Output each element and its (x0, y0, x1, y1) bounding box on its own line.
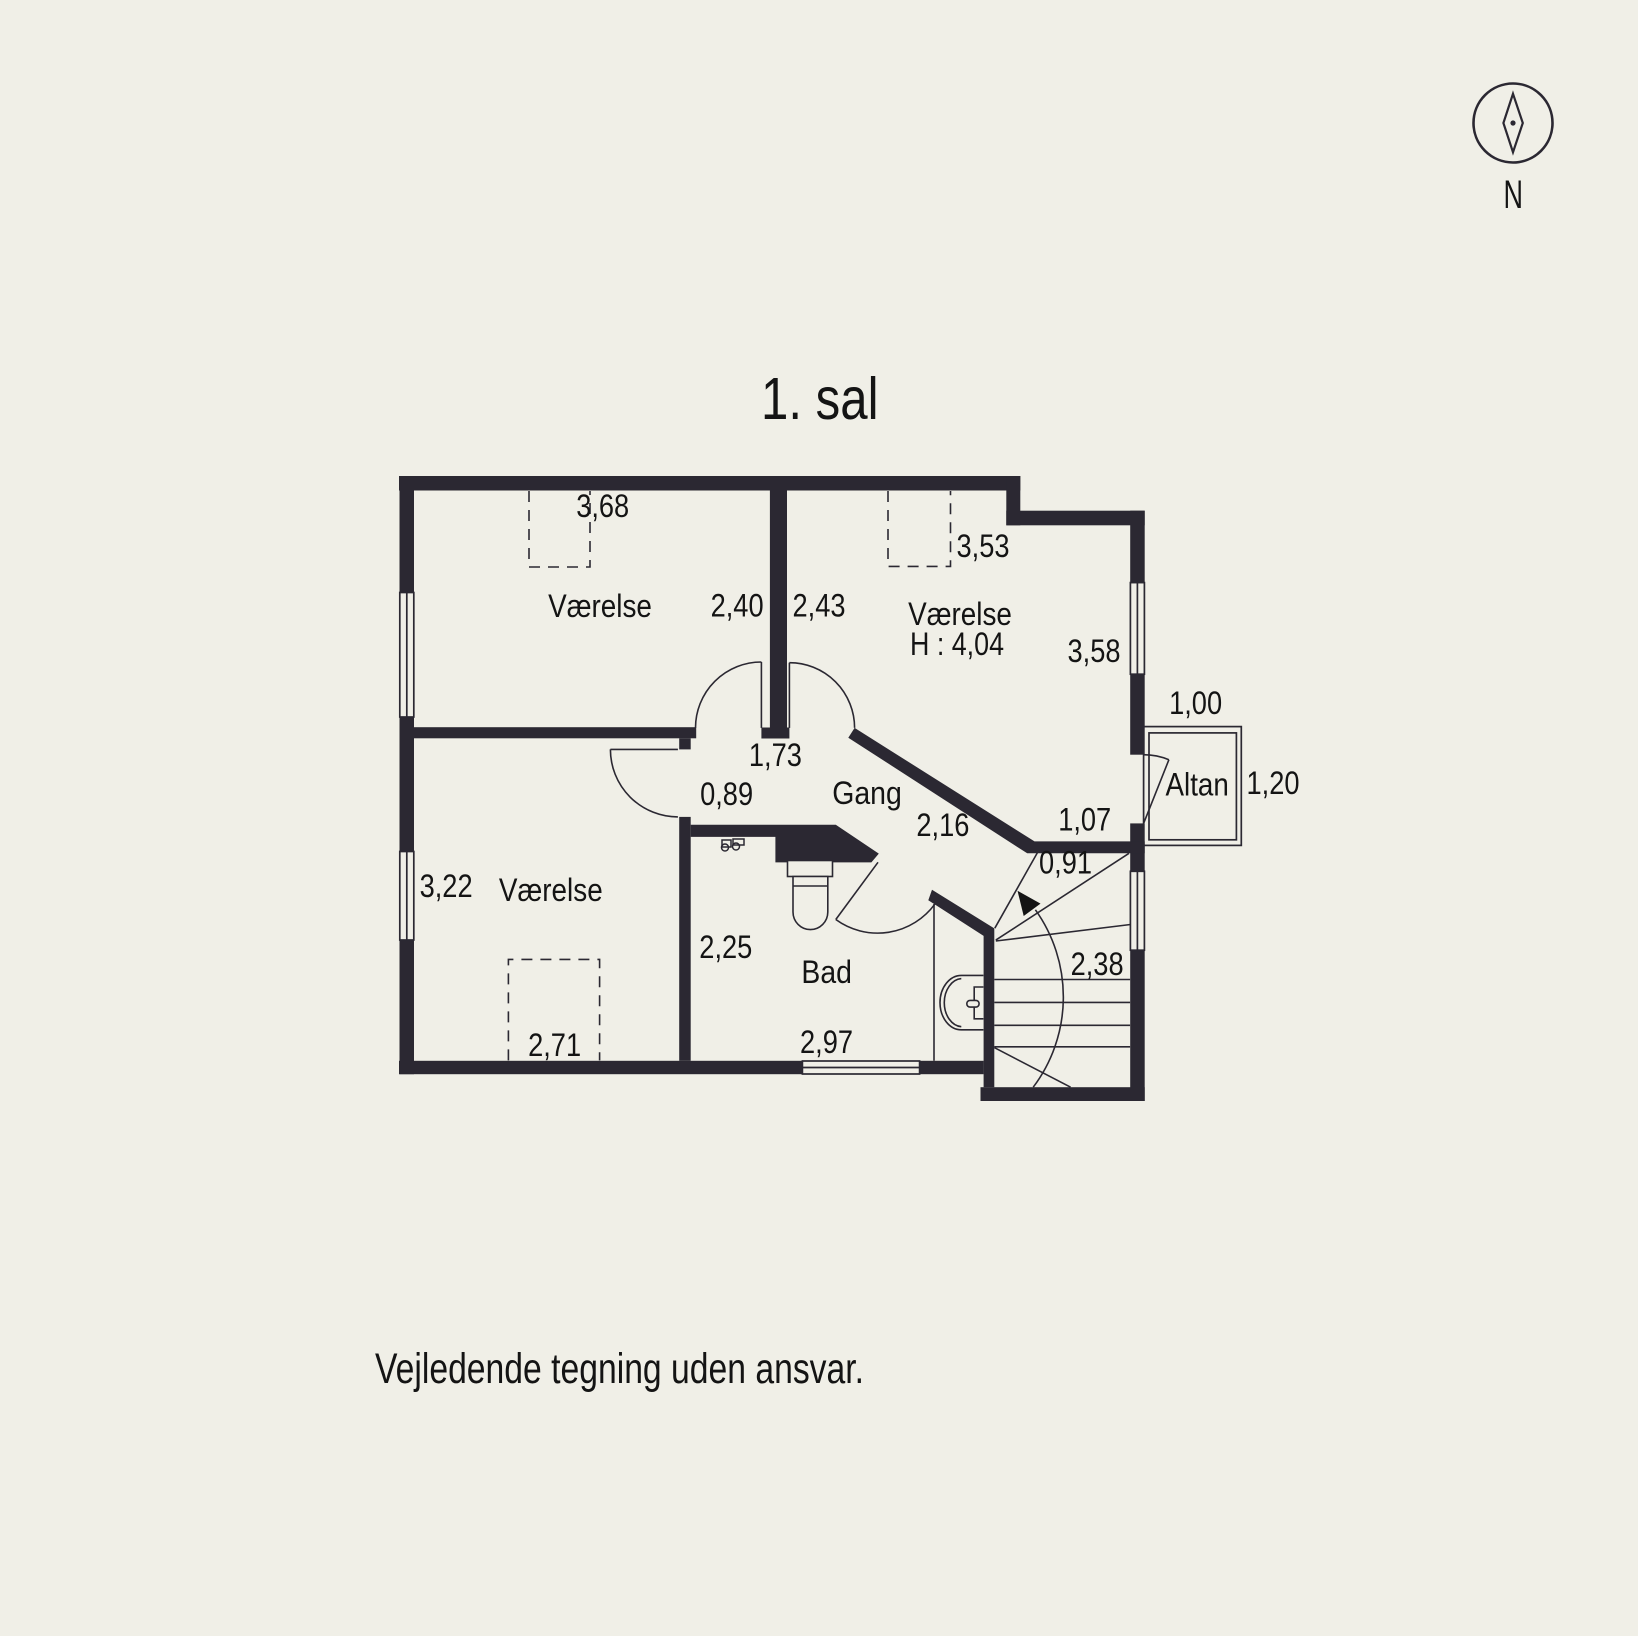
svg-text:1. sal: 1. sal (761, 365, 879, 432)
svg-text:2,38: 2,38 (1071, 946, 1124, 982)
svg-text:Altan: Altan (1166, 767, 1229, 803)
svg-text:Værelse: Værelse (499, 872, 603, 908)
svg-text:Vejledende tegning uden ansvar: Vejledende tegning uden ansvar. (375, 1345, 864, 1393)
svg-text:1,00: 1,00 (1169, 685, 1222, 721)
svg-text:N: N (1504, 173, 1524, 217)
svg-text:1,73: 1,73 (749, 737, 802, 773)
svg-text:2,16: 2,16 (916, 807, 969, 843)
svg-text:1,07: 1,07 (1058, 802, 1111, 838)
svg-text:2,40: 2,40 (711, 588, 764, 624)
svg-text:2,25: 2,25 (699, 929, 752, 965)
svg-text:2,71: 2,71 (528, 1027, 581, 1063)
svg-text:0,89: 0,89 (700, 776, 753, 812)
svg-text:2,43: 2,43 (793, 588, 846, 624)
svg-text:Værelse: Værelse (548, 588, 652, 624)
svg-text:3,22: 3,22 (420, 868, 473, 904)
svg-text:Gang: Gang (832, 775, 902, 811)
svg-text:2,97: 2,97 (800, 1024, 853, 1060)
svg-text:H : 4,04: H : 4,04 (910, 626, 1004, 662)
svg-text:3,58: 3,58 (1068, 633, 1121, 669)
svg-text:3,68: 3,68 (576, 488, 629, 524)
svg-text:0,91: 0,91 (1039, 845, 1092, 881)
svg-text:Bad: Bad (801, 954, 852, 990)
svg-text:1,20: 1,20 (1247, 765, 1300, 801)
svg-text:3,53: 3,53 (957, 528, 1010, 564)
